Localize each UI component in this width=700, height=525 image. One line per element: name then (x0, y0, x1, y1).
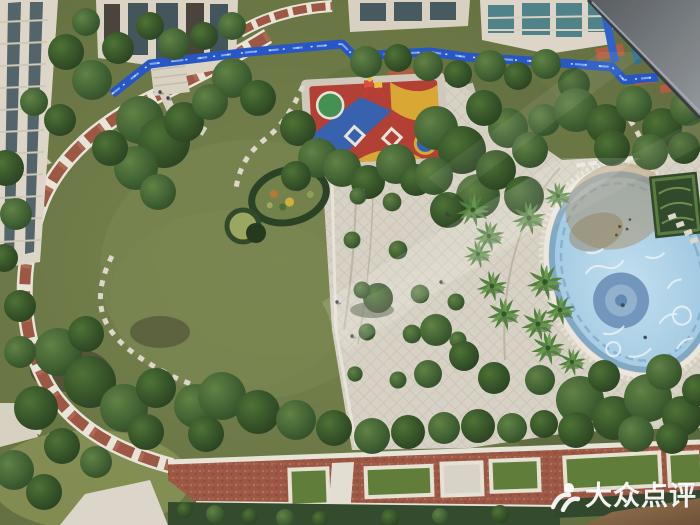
dianping-figure-icon (548, 480, 580, 512)
photo-canvas (0, 0, 700, 525)
aerial-courtyard-photo: 大众点评 (0, 0, 700, 525)
photo-haze (0, 0, 700, 525)
watermark: 大众点评 (548, 479, 697, 513)
watermark-text: 大众点评 (585, 483, 697, 510)
